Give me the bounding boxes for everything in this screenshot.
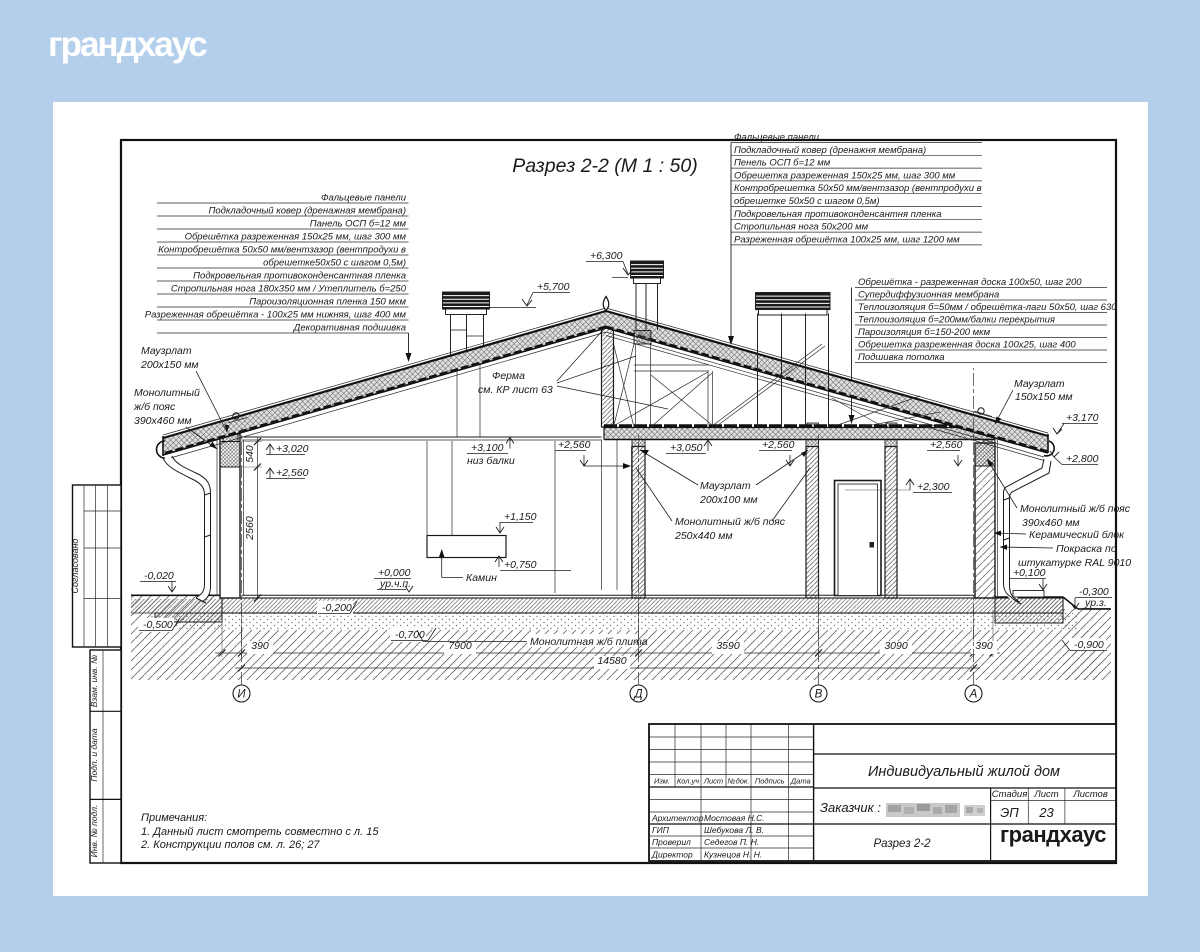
svg-text:Листов: Листов bbox=[1072, 789, 1108, 800]
svg-text:Разрез 2-2 (М 1 : 50): Разрез 2-2 (М 1 : 50) bbox=[512, 155, 697, 177]
svg-text:+5,700: +5,700 bbox=[537, 281, 570, 293]
svg-text:Покраска по: Покраска по bbox=[1056, 543, 1117, 555]
svg-text:обрешетке50х50 с шагом 0,5м): обрешетке50х50 с шагом 0,5м) bbox=[263, 258, 406, 269]
svg-text:Обрешётка разреженная 150х25 м: Обрешётка разреженная 150х25 мм, шаг 300… bbox=[185, 232, 407, 243]
svg-text:Инв. № подл.: Инв. № подл. bbox=[89, 805, 99, 858]
svg-text:Дата: Дата bbox=[790, 777, 811, 786]
svg-text:Монолитный ж/б пояс: Монолитный ж/б пояс bbox=[1020, 503, 1131, 515]
svg-text:Декоративная подшивка: Декоративная подшивка bbox=[293, 323, 406, 334]
svg-text:Панель ОСП б=12 мм: Панель ОСП б=12 мм bbox=[310, 219, 407, 230]
svg-text:А: А bbox=[969, 689, 978, 701]
svg-text:+3,100: +3,100 bbox=[471, 442, 504, 454]
svg-text:Обрешетка разреженная 150х25 м: Обрешетка разреженная 150х25 мм, шаг 300… bbox=[734, 170, 956, 181]
svg-text:-0,500: -0,500 bbox=[143, 619, 173, 631]
svg-text:Контробрешётка 50х50 мм/вентза: Контробрешётка 50х50 мм/вентзазор (вентп… bbox=[158, 245, 406, 256]
svg-text:Монолитная ж/б плита: Монолитная ж/б плита bbox=[530, 636, 648, 648]
svg-text:+2,800: +2,800 bbox=[1066, 453, 1099, 465]
svg-text:см. КР лист 63: см. КР лист 63 bbox=[478, 384, 553, 396]
svg-text:Примечания:: Примечания: bbox=[141, 812, 207, 824]
svg-text:Монолитный ж/б пояс: Монолитный ж/б пояс bbox=[675, 516, 786, 528]
svg-text:Маузрлат: Маузрлат bbox=[1014, 378, 1065, 390]
svg-text:-0,020: -0,020 bbox=[144, 570, 174, 582]
svg-text:+6,300: +6,300 bbox=[590, 250, 623, 262]
svg-text:Монолитный: Монолитный bbox=[134, 387, 200, 399]
svg-text:Индивидуальный жилой дом: Индивидуальный жилой дом bbox=[868, 764, 1060, 780]
svg-text:+2,300: +2,300 bbox=[917, 481, 950, 493]
svg-text:-0,200: -0,200 bbox=[322, 602, 352, 614]
svg-text:ур.з.: ур.з. bbox=[1084, 597, 1107, 609]
svg-text:Согласовано: Согласовано bbox=[70, 539, 80, 594]
svg-text:Керамический блок: Керамический блок bbox=[1029, 529, 1125, 541]
svg-text:1. Данный лист смотреть совмес: 1. Данный лист смотреть совместно с л. 1… bbox=[141, 826, 379, 838]
svg-text:обрешетке 50х50 с шагом 0,5м): обрешетке 50х50 с шагом 0,5м) bbox=[734, 196, 880, 207]
svg-text:390х460 мм: 390х460 мм bbox=[134, 415, 192, 427]
svg-text:390: 390 bbox=[975, 640, 993, 652]
svg-text:Подп. и дата: Подп. и дата bbox=[89, 728, 99, 781]
svg-text:Маузрлат: Маузрлат bbox=[141, 345, 192, 357]
svg-text:+0,750: +0,750 bbox=[504, 559, 537, 571]
svg-text:Подкладочный ковер (дренажная: Подкладочный ковер (дренажная мембрана) bbox=[209, 206, 406, 217]
svg-text:Разреженная обрешётка - 100х25: Разреженная обрешётка - 100х25 мм нижняя… bbox=[145, 310, 407, 321]
svg-text:Контробрешетка 50х50 мм/вентза: Контробрешетка 50х50 мм/вентзазор (вентп… bbox=[734, 183, 982, 194]
svg-text:Подшивка потолка: Подшивка потолка bbox=[858, 352, 944, 363]
svg-text:+2,560: +2,560 bbox=[558, 439, 591, 451]
svg-text:Подкладочный ковер (дренажня м: Подкладочный ковер (дренажня мембрана) bbox=[734, 145, 926, 156]
svg-text:Д: Д bbox=[632, 689, 642, 701]
svg-text:+3,020: +3,020 bbox=[276, 443, 309, 455]
svg-text:Пароизоляционная пленка 150 мк: Пароизоляционная пленка 150 мкм bbox=[249, 297, 406, 308]
svg-text:3090: 3090 bbox=[884, 640, 908, 652]
svg-text:Разрез 2-2: Разрез 2-2 bbox=[874, 838, 932, 850]
svg-text:+3,050: +3,050 bbox=[670, 442, 703, 454]
svg-text:Теплоизоляция б=200мм/балки пе: Теплоизоляция б=200мм/балки перекрытия bbox=[858, 315, 1055, 326]
svg-text:Архитектор: Архитектор bbox=[651, 813, 704, 823]
svg-text:Стропильная нога 180х350 мм /: Стропильная нога 180х350 мм / Утеплитель… bbox=[171, 284, 407, 295]
svg-text:540: 540 bbox=[244, 445, 256, 463]
svg-text:Лист: Лист bbox=[1033, 789, 1059, 800]
svg-text:Шебукова Л. В.: Шебукова Л. В. bbox=[704, 825, 764, 835]
svg-text:+1,150: +1,150 bbox=[504, 511, 537, 523]
svg-text:ЭП: ЭП bbox=[1000, 805, 1019, 820]
svg-text:390х460 мм: 390х460 мм bbox=[1022, 517, 1080, 529]
svg-text:200х100 мм: 200х100 мм bbox=[699, 494, 758, 506]
svg-text:+2,560: +2,560 bbox=[762, 439, 795, 451]
svg-text:3590: 3590 bbox=[716, 640, 740, 652]
svg-text:низ балки: низ балки bbox=[467, 455, 515, 467]
svg-text:Директор: Директор bbox=[651, 850, 693, 860]
svg-text:Ферма: Ферма bbox=[492, 370, 525, 382]
svg-text:Пенель ОСП б=12 мм: Пенель ОСП б=12 мм bbox=[734, 158, 831, 169]
svg-text:Подкровельная противоконденсан: Подкровельная противоконденсантня пленка bbox=[734, 209, 942, 220]
svg-text:Пароизоляция б=150-200 мкм: Пароизоляция б=150-200 мкм bbox=[858, 327, 991, 338]
svg-text:В: В bbox=[815, 689, 823, 701]
svg-text:Фальцевые панели: Фальцевые панели bbox=[734, 132, 820, 143]
svg-text:Теплоизоляция б=50мм / обрешёт: Теплоизоляция б=50мм / обрешётка-лаги 50… bbox=[858, 302, 1117, 313]
svg-text:грандхаус: грандхаус bbox=[1000, 822, 1106, 847]
svg-text:Кузнецов Н. Н.: Кузнецов Н. Н. bbox=[704, 850, 762, 860]
svg-text:23: 23 bbox=[1038, 805, 1054, 820]
svg-text:Стропильная нога 50х200 мм: Стропильная нога 50х200 мм bbox=[734, 222, 869, 233]
svg-text:14580: 14580 bbox=[597, 655, 626, 667]
svg-text:Разреженная обрешётка 100х25 м: Разреженная обрешётка 100х25 мм, шаг 120… bbox=[734, 234, 960, 245]
svg-text:Лист: Лист bbox=[703, 777, 723, 786]
svg-text:Маузрлат: Маузрлат bbox=[700, 480, 751, 492]
svg-text:Фальцевые панели: Фальцевые панели bbox=[321, 193, 407, 204]
svg-text:150х150 мм: 150х150 мм bbox=[1015, 391, 1073, 403]
svg-text:+2,560: +2,560 bbox=[276, 467, 309, 479]
svg-text:Заказчик :: Заказчик : bbox=[820, 800, 881, 815]
svg-text:Камин: Камин bbox=[466, 572, 497, 584]
svg-text:Стадия: Стадия bbox=[992, 789, 1028, 800]
svg-text:ж/б пояс: ж/б пояс bbox=[133, 401, 176, 413]
svg-text:Проверил: Проверил bbox=[652, 837, 691, 847]
svg-text:Изм.: Изм. bbox=[654, 777, 670, 786]
svg-text:И: И bbox=[237, 689, 246, 701]
svg-text:Подпись: Подпись bbox=[755, 777, 785, 786]
svg-text:Взам. инв. №: Взам. инв. № bbox=[89, 655, 99, 708]
svg-text:-0,700: -0,700 bbox=[395, 629, 425, 641]
svg-text:390: 390 bbox=[251, 640, 269, 652]
svg-text:Кол.уч: Кол.уч bbox=[677, 777, 699, 786]
svg-text:Обрешетка разреженная доска 10: Обрешетка разреженная доска 100х25, шаг … bbox=[858, 340, 1076, 351]
svg-text:ГИП: ГИП bbox=[652, 825, 670, 835]
svg-text:Седегов П. Н.: Седегов П. Н. bbox=[704, 837, 759, 847]
svg-text:штукатурке RAL 9010: штукатурке RAL 9010 bbox=[1018, 557, 1131, 569]
svg-text:+3,170: +3,170 bbox=[1066, 412, 1099, 424]
svg-text:Обрешётка - разреженная доска: Обрешётка - разреженная доска 100х50, ша… bbox=[858, 277, 1082, 288]
svg-text:Супердиффузионная мембрана: Супердиффузионная мембрана bbox=[858, 290, 999, 301]
svg-text:+2,560: +2,560 bbox=[930, 439, 963, 451]
svg-text:2560: 2560 bbox=[244, 516, 256, 541]
svg-text:200х150 мм: 200х150 мм bbox=[140, 359, 199, 371]
svg-text:-0,900: -0,900 bbox=[1074, 639, 1104, 651]
svg-text:250х440 мм: 250х440 мм bbox=[674, 530, 733, 542]
svg-text:№док.: №док. bbox=[727, 777, 749, 786]
svg-text:Мостовая Н.С.: Мостовая Н.С. bbox=[704, 813, 765, 823]
svg-text:2. Конструкции полов см. л. 26: 2. Конструкции полов см. л. 26; 27 bbox=[140, 839, 320, 851]
svg-text:Подкровельная противоконденсан: Подкровельная противоконденсантная пленк… bbox=[193, 271, 406, 282]
